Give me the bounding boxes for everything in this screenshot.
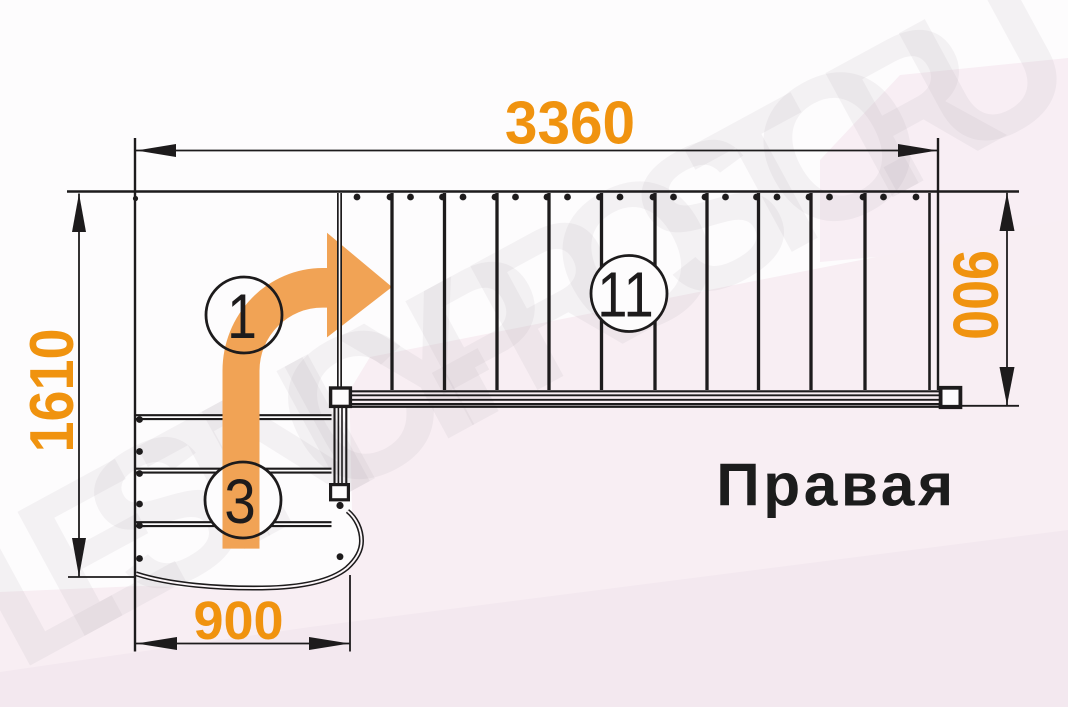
svg-text:3360: 3360: [505, 89, 635, 157]
svg-text:1610: 1610: [18, 328, 86, 452]
svg-text:900: 900: [939, 250, 1012, 340]
svg-text:11: 11: [597, 258, 653, 330]
svg-text:900: 900: [193, 591, 283, 651]
svg-text:Правая: Правая: [716, 451, 956, 519]
svg-text:3: 3: [224, 466, 256, 536]
svg-text:1: 1: [227, 282, 257, 352]
